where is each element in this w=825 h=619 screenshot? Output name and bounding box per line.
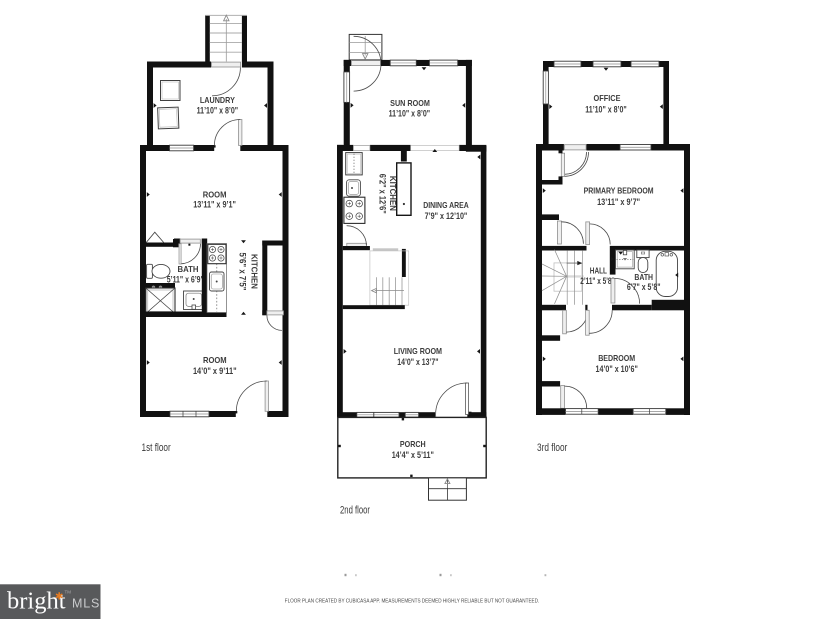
svg-text:2’11" x 5’8": 2’11" x 5’8" <box>580 276 614 286</box>
svg-text:FLOOR PLAN CREATED BY CUBICASA: FLOOR PLAN CREATED BY CUBICASA APP. MEAS… <box>285 598 540 604</box>
svg-text:2nd floor: 2nd floor <box>340 505 370 517</box>
svg-text:DINING AREA: DINING AREA <box>423 201 469 210</box>
svg-text:BATH: BATH <box>634 273 653 282</box>
svg-text:7’9" x 12’10": 7’9" x 12’10" <box>425 211 468 221</box>
svg-text:ROOM: ROOM <box>203 190 227 199</box>
svg-text:11’10" x 8’0": 11’10" x 8’0" <box>389 109 431 119</box>
svg-text:KITCHEN: KITCHEN <box>250 254 259 289</box>
svg-text:BEDROOM: BEDROOM <box>598 354 635 363</box>
svg-text:14’0" x 9’11": 14’0" x 9’11" <box>193 366 237 376</box>
svg-text:✱: ✱ <box>55 592 63 603</box>
svg-text:LAUNDRY: LAUNDRY <box>200 96 236 105</box>
svg-text:1st floor: 1st floor <box>142 442 171 454</box>
svg-text:PRIMARY BEDROOM: PRIMARY BEDROOM <box>584 186 654 195</box>
svg-text:5’6" x 7’5": 5’6" x 7’5" <box>238 253 248 291</box>
svg-text:6’7" x 5’8": 6’7" x 5’8" <box>627 282 661 292</box>
svg-text:LIVING ROOM: LIVING ROOM <box>394 347 443 356</box>
svg-text:13’11" x 9’1": 13’11" x 9’1" <box>193 200 236 210</box>
svg-text:BATH: BATH <box>178 265 199 274</box>
svg-text:14’4" x 5’11": 14’4" x 5’11" <box>392 450 434 460</box>
svg-text:SUN ROOM: SUN ROOM <box>390 99 430 108</box>
svg-text:3rd floor: 3rd floor <box>537 442 568 454</box>
svg-text:13’11" x 9’7": 13’11" x 9’7" <box>597 197 640 207</box>
svg-text:MLS: MLS <box>72 597 100 611</box>
svg-text:6’2" x 12’6": 6’2" x 12’6" <box>377 174 387 214</box>
svg-text:HALL: HALL <box>590 266 607 275</box>
svg-text:14’0" x 13’7": 14’0" x 13’7" <box>397 357 438 367</box>
svg-text:11’10" x 8’0": 11’10" x 8’0" <box>585 104 627 114</box>
svg-text:11’10" x 8’0": 11’10" x 8’0" <box>197 106 239 116</box>
svg-text:5’11" x 6’9": 5’11" x 6’9" <box>167 275 204 285</box>
svg-text:14’0" x 10’6": 14’0" x 10’6" <box>596 364 638 374</box>
svg-text:KITCHEN: KITCHEN <box>388 176 397 211</box>
svg-text:TM: TM <box>65 590 72 595</box>
svg-text:OFFICE: OFFICE <box>594 94 622 103</box>
svg-text:PORCH: PORCH <box>400 440 426 449</box>
svg-text:ROOM: ROOM <box>203 356 227 365</box>
